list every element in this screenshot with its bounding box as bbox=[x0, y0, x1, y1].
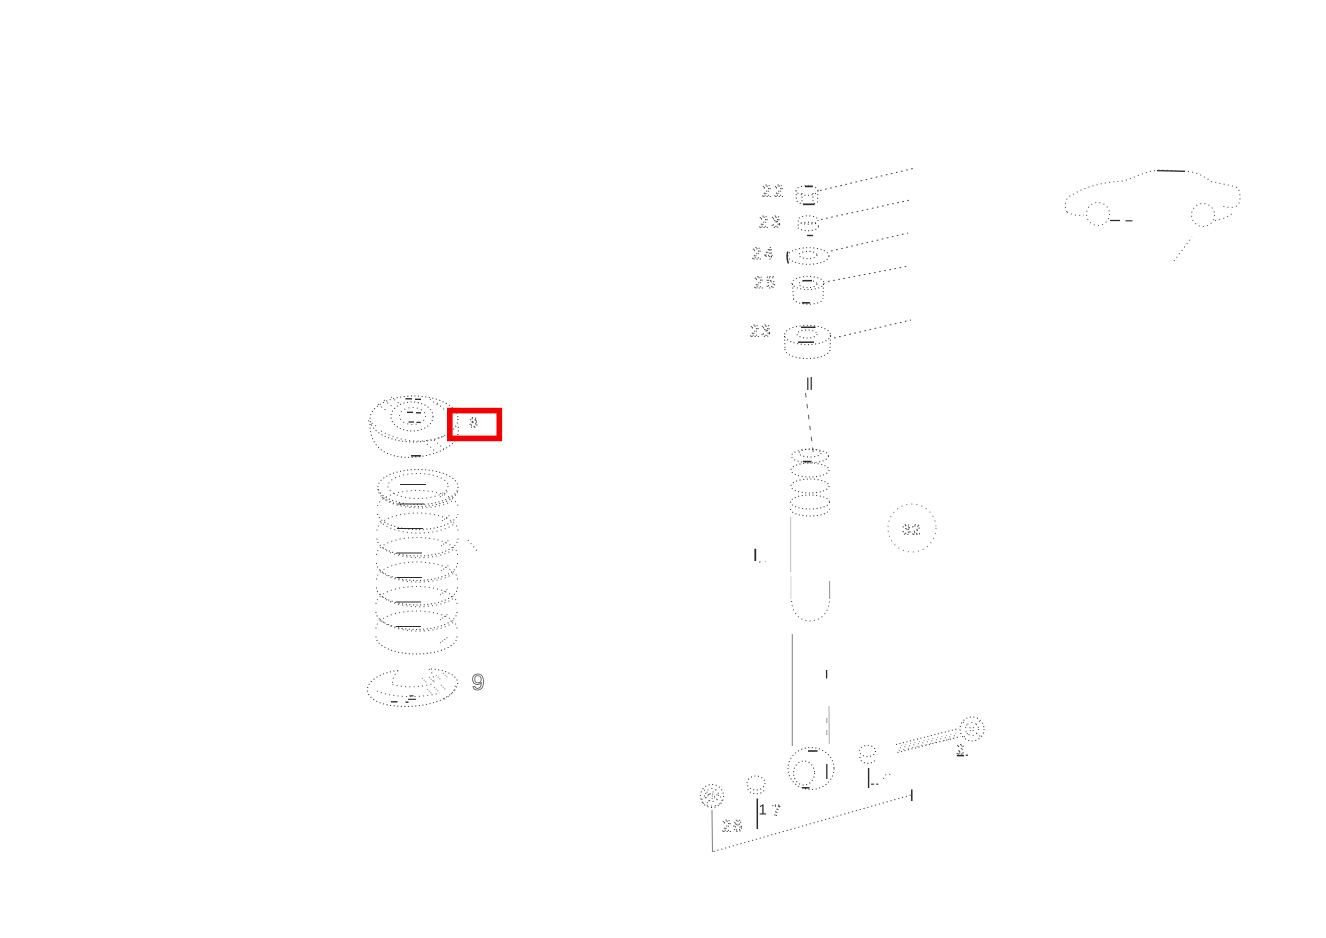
svg-text:7: 7 bbox=[772, 803, 781, 820]
svg-text:32: 32 bbox=[903, 523, 922, 539]
svg-text:23: 23 bbox=[759, 214, 783, 232]
svg-text:8: 8 bbox=[470, 416, 478, 432]
svg-text:1: 1 bbox=[759, 802, 767, 819]
svg-text:9: 9 bbox=[472, 669, 485, 695]
svg-text:26: 26 bbox=[722, 818, 744, 836]
svg-text:2: 2 bbox=[957, 742, 965, 757]
svg-text:22: 22 bbox=[762, 183, 786, 201]
svg-text:25: 25 bbox=[754, 274, 778, 292]
svg-text:24: 24 bbox=[752, 245, 776, 263]
svg-text:23: 23 bbox=[750, 323, 772, 341]
